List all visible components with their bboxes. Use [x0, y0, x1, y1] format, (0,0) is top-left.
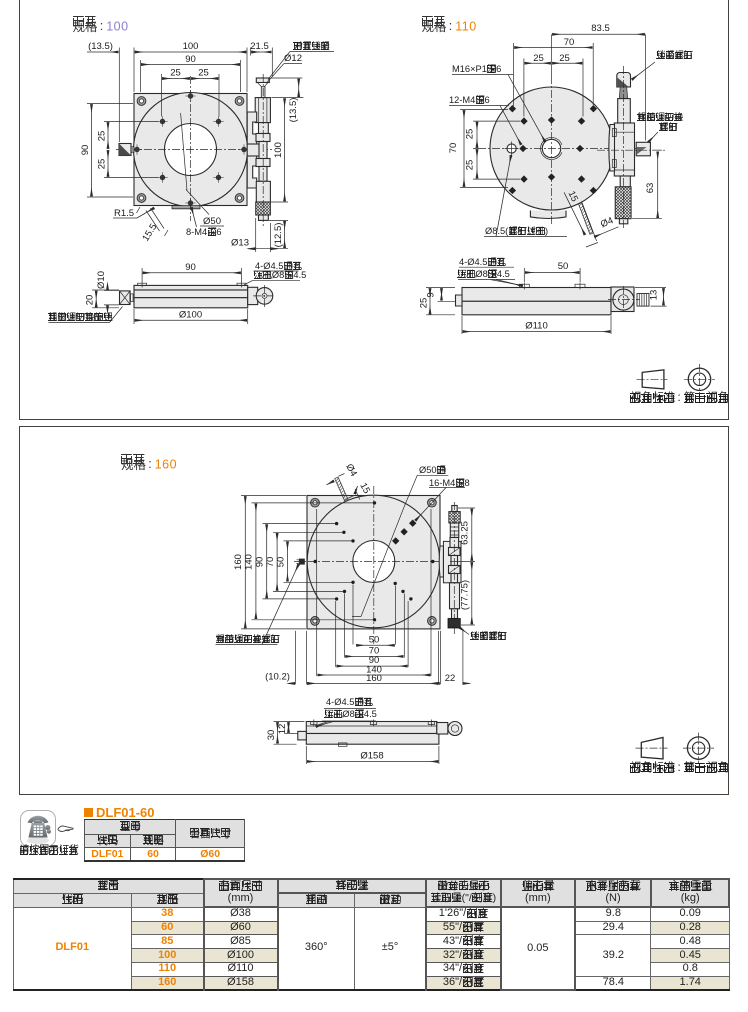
- svg-text:Ø12: Ø12: [284, 53, 302, 64]
- svg-text:90: 90: [185, 262, 196, 273]
- svg-text:70: 70: [564, 37, 575, 48]
- svg-text:90: 90: [185, 54, 196, 65]
- svg-text:15: 15: [357, 481, 372, 496]
- svg-text:63.25: 63.25: [459, 521, 470, 545]
- svg-text:50: 50: [558, 261, 569, 272]
- svg-text:70: 70: [265, 557, 276, 568]
- svg-text:30: 30: [266, 730, 277, 741]
- svg-text:(13.5): (13.5): [88, 41, 113, 52]
- svg-text:50: 50: [276, 557, 287, 568]
- svg-text:(13.5): (13.5): [288, 98, 299, 123]
- svg-text:25: 25: [97, 159, 108, 170]
- svg-text:25: 25: [97, 131, 108, 142]
- svg-text:100: 100: [183, 41, 199, 52]
- svg-text:Ø10: Ø10: [96, 271, 107, 289]
- svg-text:Ø4: Ø4: [599, 215, 615, 230]
- svg-text:Ø158: Ø158: [360, 751, 383, 762]
- svg-text:22: 22: [445, 673, 456, 684]
- svg-text:90: 90: [255, 557, 266, 568]
- svg-text:(12.5): (12.5): [273, 223, 284, 248]
- svg-text:83.5: 83.5: [591, 23, 610, 34]
- svg-text:25: 25: [198, 68, 209, 79]
- svg-text:25: 25: [465, 129, 476, 140]
- svg-text:25: 25: [170, 68, 181, 79]
- svg-text:20: 20: [85, 295, 96, 306]
- svg-text:25: 25: [559, 53, 570, 64]
- svg-text:160: 160: [233, 554, 244, 570]
- svg-text:21.5: 21.5: [250, 41, 269, 52]
- svg-text:Ø13: Ø13: [231, 238, 249, 249]
- svg-text:63: 63: [645, 183, 656, 194]
- svg-text:9: 9: [426, 292, 437, 297]
- svg-text:25: 25: [533, 53, 544, 64]
- svg-text:140: 140: [244, 554, 255, 570]
- svg-text:90: 90: [80, 145, 91, 156]
- svg-text:(10.2): (10.2): [265, 672, 290, 683]
- svg-text:100: 100: [273, 142, 284, 158]
- svg-text:(77.75): (77.75): [459, 580, 470, 610]
- svg-text:15.5: 15.5: [140, 222, 159, 244]
- svg-text:70: 70: [448, 143, 459, 154]
- svg-text:R1.5: R1.5: [114, 208, 134, 219]
- svg-text:13: 13: [649, 290, 660, 301]
- svg-text:Ø50: Ø50: [203, 216, 221, 227]
- svg-text:Ø100: Ø100: [179, 310, 202, 321]
- svg-text:160: 160: [366, 673, 382, 684]
- svg-text:50: 50: [369, 635, 380, 646]
- svg-text:Ø4: Ø4: [343, 462, 359, 478]
- svg-text:12: 12: [277, 724, 288, 735]
- svg-text:Ø110: Ø110: [525, 321, 548, 332]
- svg-text:25: 25: [465, 160, 476, 171]
- svg-text:25: 25: [419, 298, 430, 309]
